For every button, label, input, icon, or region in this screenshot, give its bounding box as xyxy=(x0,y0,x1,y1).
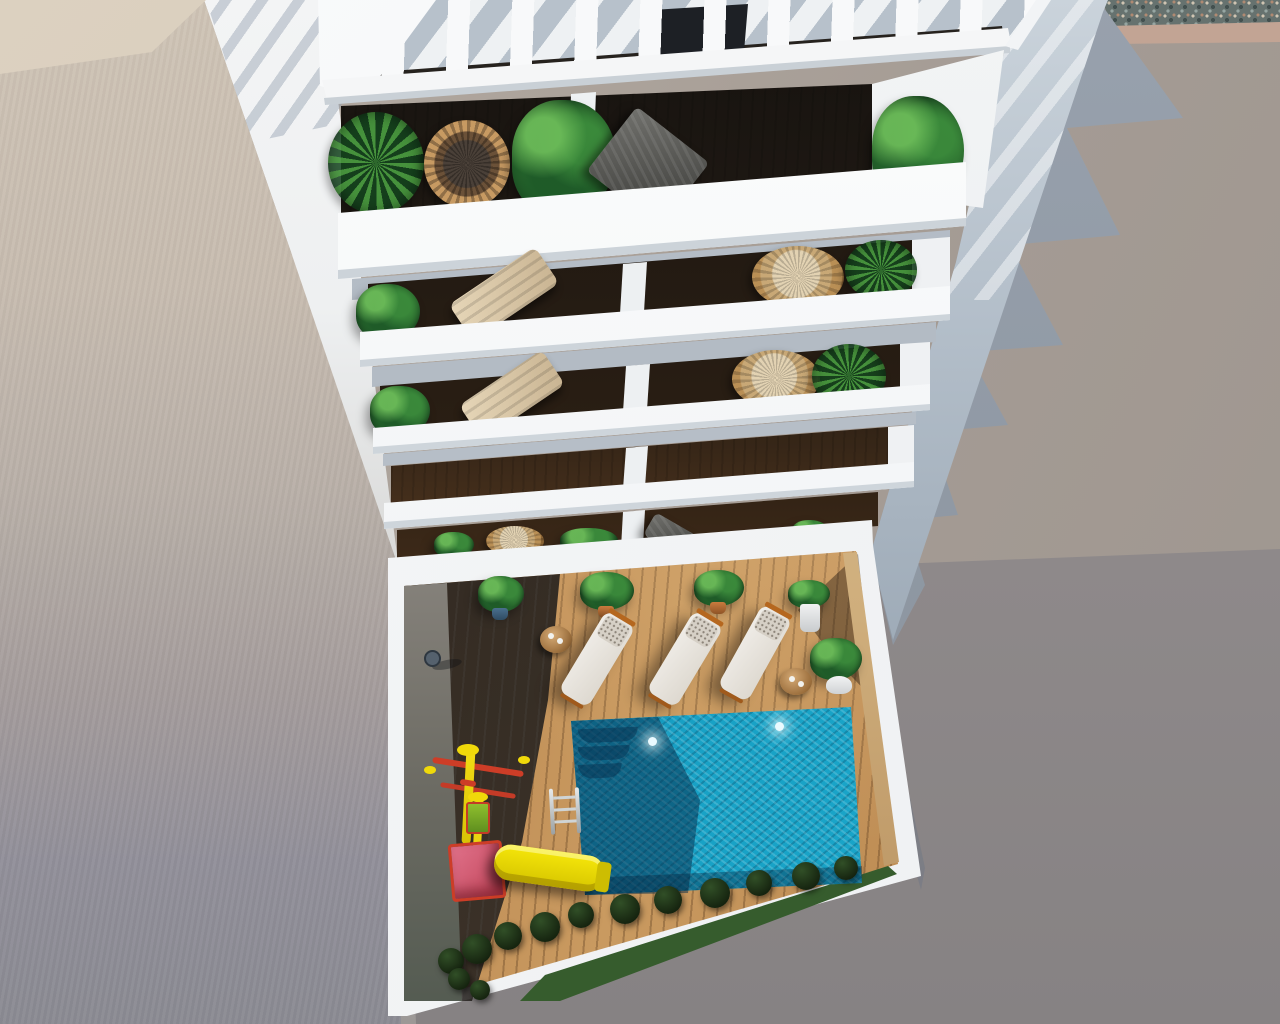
hedge-bush xyxy=(834,856,858,880)
swing-seat xyxy=(466,802,490,834)
hedge-bush xyxy=(470,980,490,1000)
pool-light-2 xyxy=(775,722,784,731)
side-table-1 xyxy=(540,626,572,653)
slide-chute-end xyxy=(594,861,612,893)
swing-crossbar xyxy=(432,757,524,777)
aerial-building-render xyxy=(0,0,1280,1024)
hedge-bush xyxy=(530,912,560,942)
white-plant-pot xyxy=(826,676,852,694)
slide-chute xyxy=(492,843,606,894)
round-wicker-chair xyxy=(424,120,510,208)
swing-post-cap xyxy=(457,744,479,756)
swing-frame-cap xyxy=(518,756,530,764)
swing-frame-cap xyxy=(424,766,436,774)
side-table-2 xyxy=(780,668,812,695)
tall-white-pot xyxy=(800,604,820,632)
hedge-bush xyxy=(746,870,772,896)
playground xyxy=(424,744,624,919)
blue-plant-pot xyxy=(492,608,508,620)
table-item xyxy=(548,633,554,639)
hedge-bush xyxy=(568,902,594,928)
table-item xyxy=(557,638,563,644)
hedge-bush xyxy=(462,934,492,964)
hedge-bush xyxy=(792,862,820,890)
wall-lamp xyxy=(424,650,441,667)
pool-light-1 xyxy=(648,737,657,746)
plant-pot xyxy=(710,602,726,614)
hedge-bush xyxy=(494,922,522,950)
hedge-bush xyxy=(610,894,640,924)
hedge-bush xyxy=(448,968,470,990)
table-item xyxy=(798,681,804,687)
hedge-bush xyxy=(654,886,682,914)
palm-plant xyxy=(328,112,424,214)
hedge-bush xyxy=(700,878,730,908)
table-item xyxy=(789,676,795,682)
swing-post-cap xyxy=(468,792,488,802)
